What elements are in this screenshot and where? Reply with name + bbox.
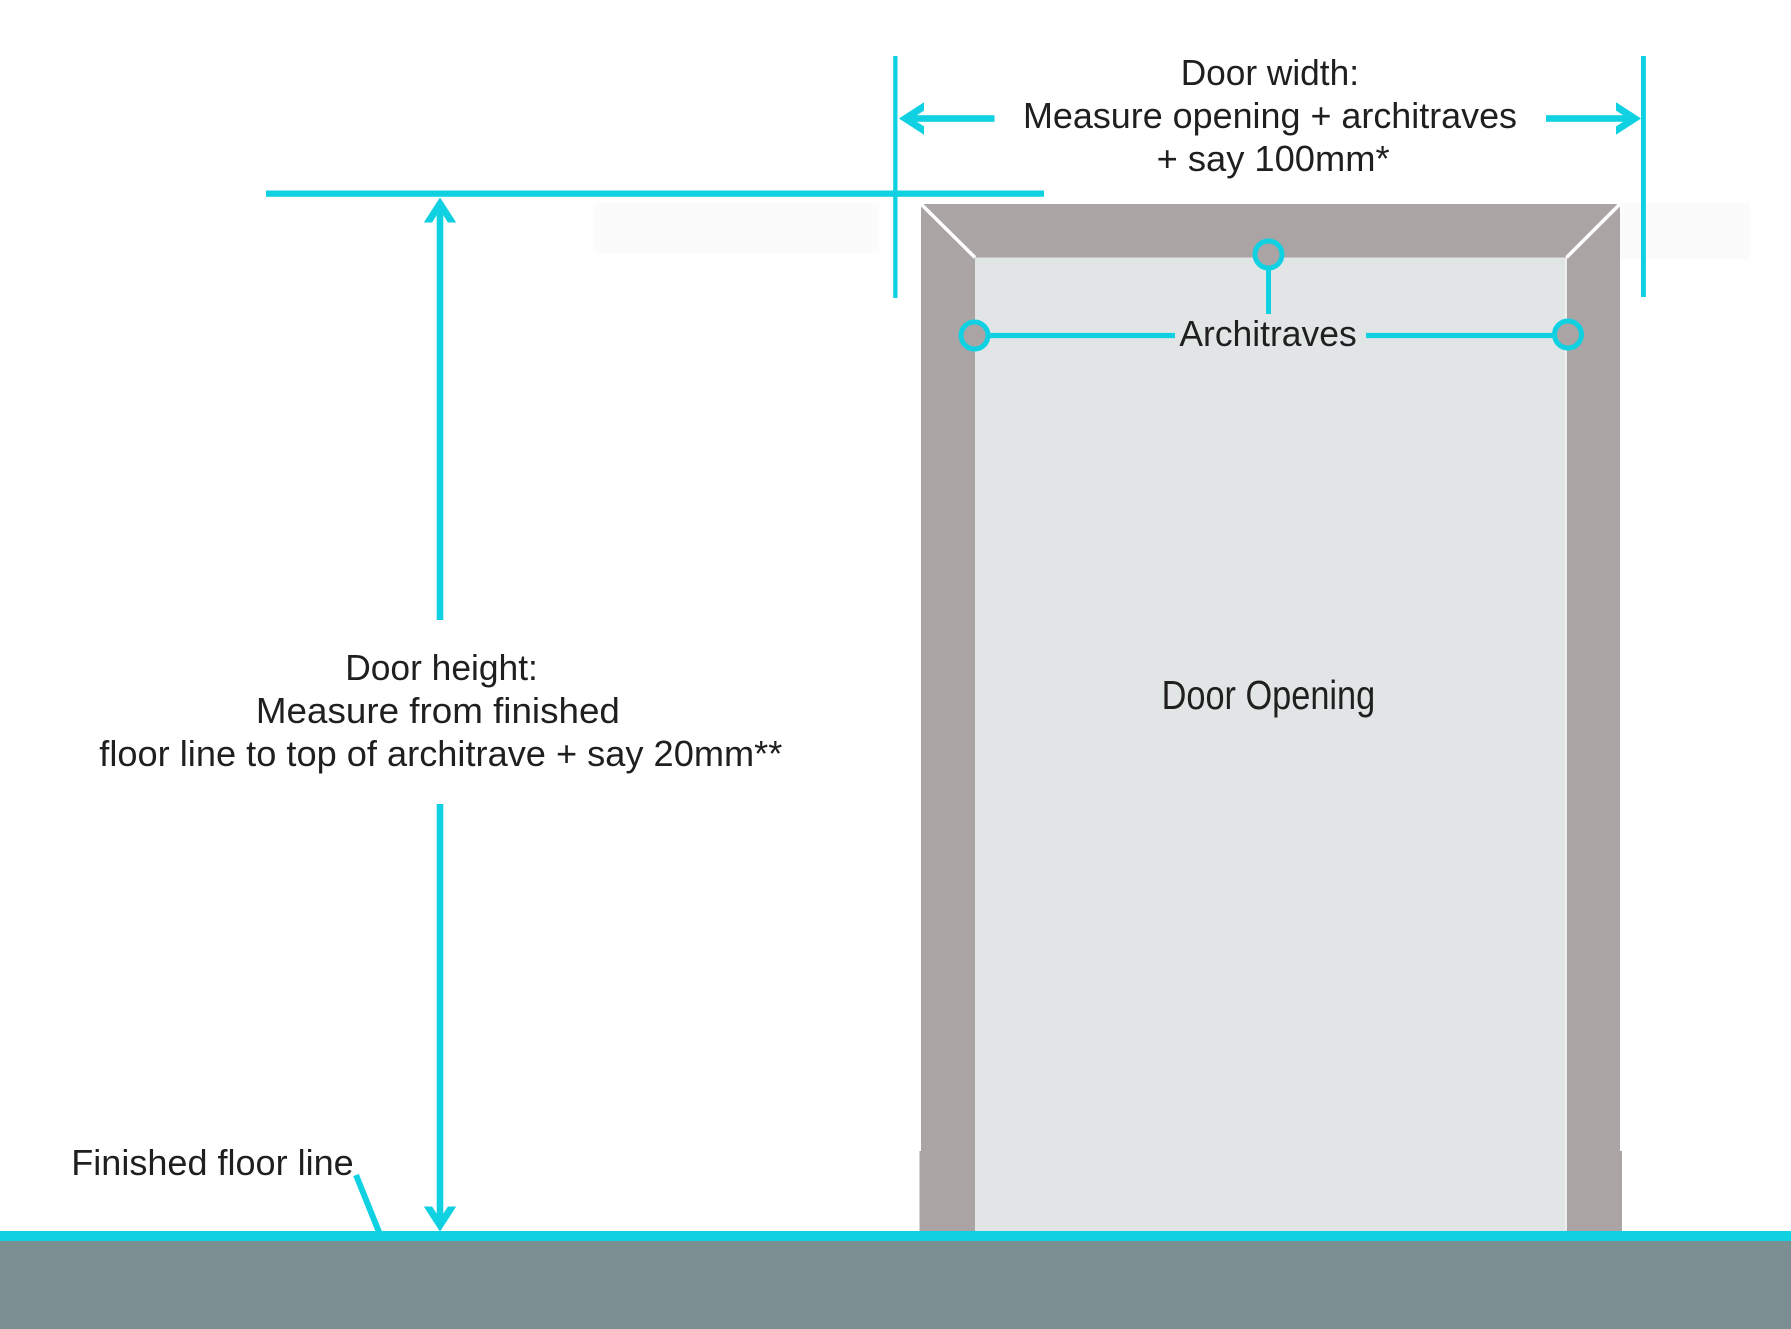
- svg-text:Door width:: Door width:: [1181, 52, 1359, 93]
- svg-text:Door Opening: Door Opening: [1162, 672, 1376, 718]
- svg-text:+ say 100mm*: + say 100mm*: [1157, 138, 1390, 179]
- svg-text:Measure opening + architraves: Measure opening + architraves: [1023, 95, 1517, 136]
- svg-text:Finished floor line: Finished floor line: [71, 1142, 353, 1183]
- svg-text:Door height:: Door height:: [345, 647, 538, 688]
- svg-text:floor line to top of architrav: floor line to top of architrave + say 20…: [99, 733, 782, 774]
- svg-text:Measure from finished: Measure from finished: [256, 690, 620, 731]
- svg-text:Architraves: Architraves: [1179, 313, 1356, 354]
